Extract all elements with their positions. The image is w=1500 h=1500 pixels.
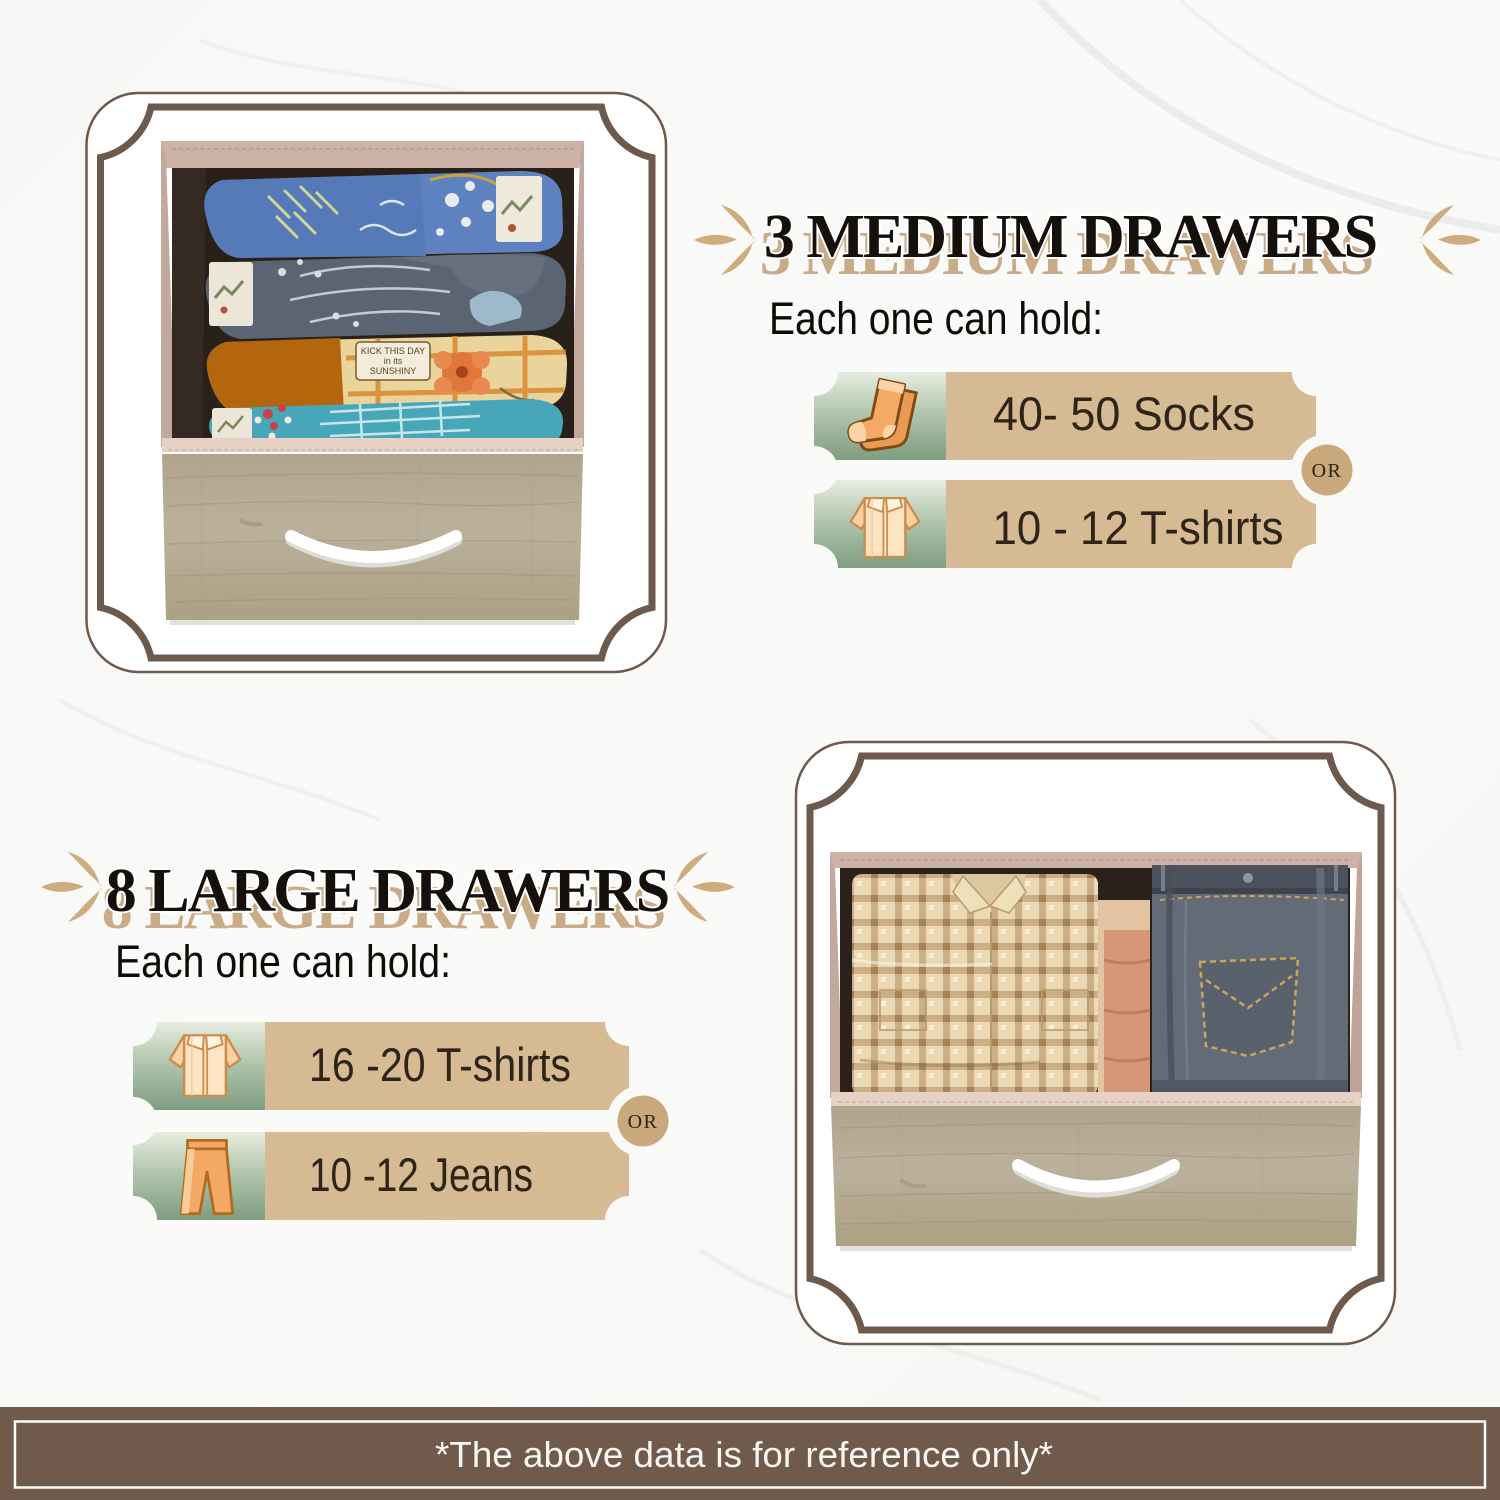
svg-text:40- 50 Socks: 40- 50 Socks: [993, 387, 1255, 440]
svg-text:SUNSHINY: SUNSHINY: [370, 366, 417, 376]
svg-text:16 -20 T-shirts: 16 -20 T-shirts: [309, 1038, 571, 1091]
svg-text:3 MEDIUM DRAWERS: 3 MEDIUM DRAWERS: [764, 203, 1376, 271]
svg-text:Each one can hold:: Each one can hold:: [769, 293, 1103, 344]
svg-text:Each one can hold:: Each one can hold:: [115, 936, 451, 987]
svg-text:10 -12 Jeans: 10 -12 Jeans: [309, 1148, 533, 1201]
svg-text:in its: in its: [384, 356, 403, 366]
svg-text:KICK THIS DAY: KICK THIS DAY: [361, 346, 425, 356]
svg-text:8 LARGE DRAWERS: 8 LARGE DRAWERS: [106, 857, 669, 925]
svg-text:*The above data is for referen: *The above data is for reference only*: [435, 1434, 1053, 1475]
svg-text:OR: OR: [628, 1111, 659, 1133]
svg-text:OR: OR: [1312, 460, 1343, 482]
svg-text:10 - 12 T-shirts: 10 - 12 T-shirts: [993, 501, 1284, 554]
